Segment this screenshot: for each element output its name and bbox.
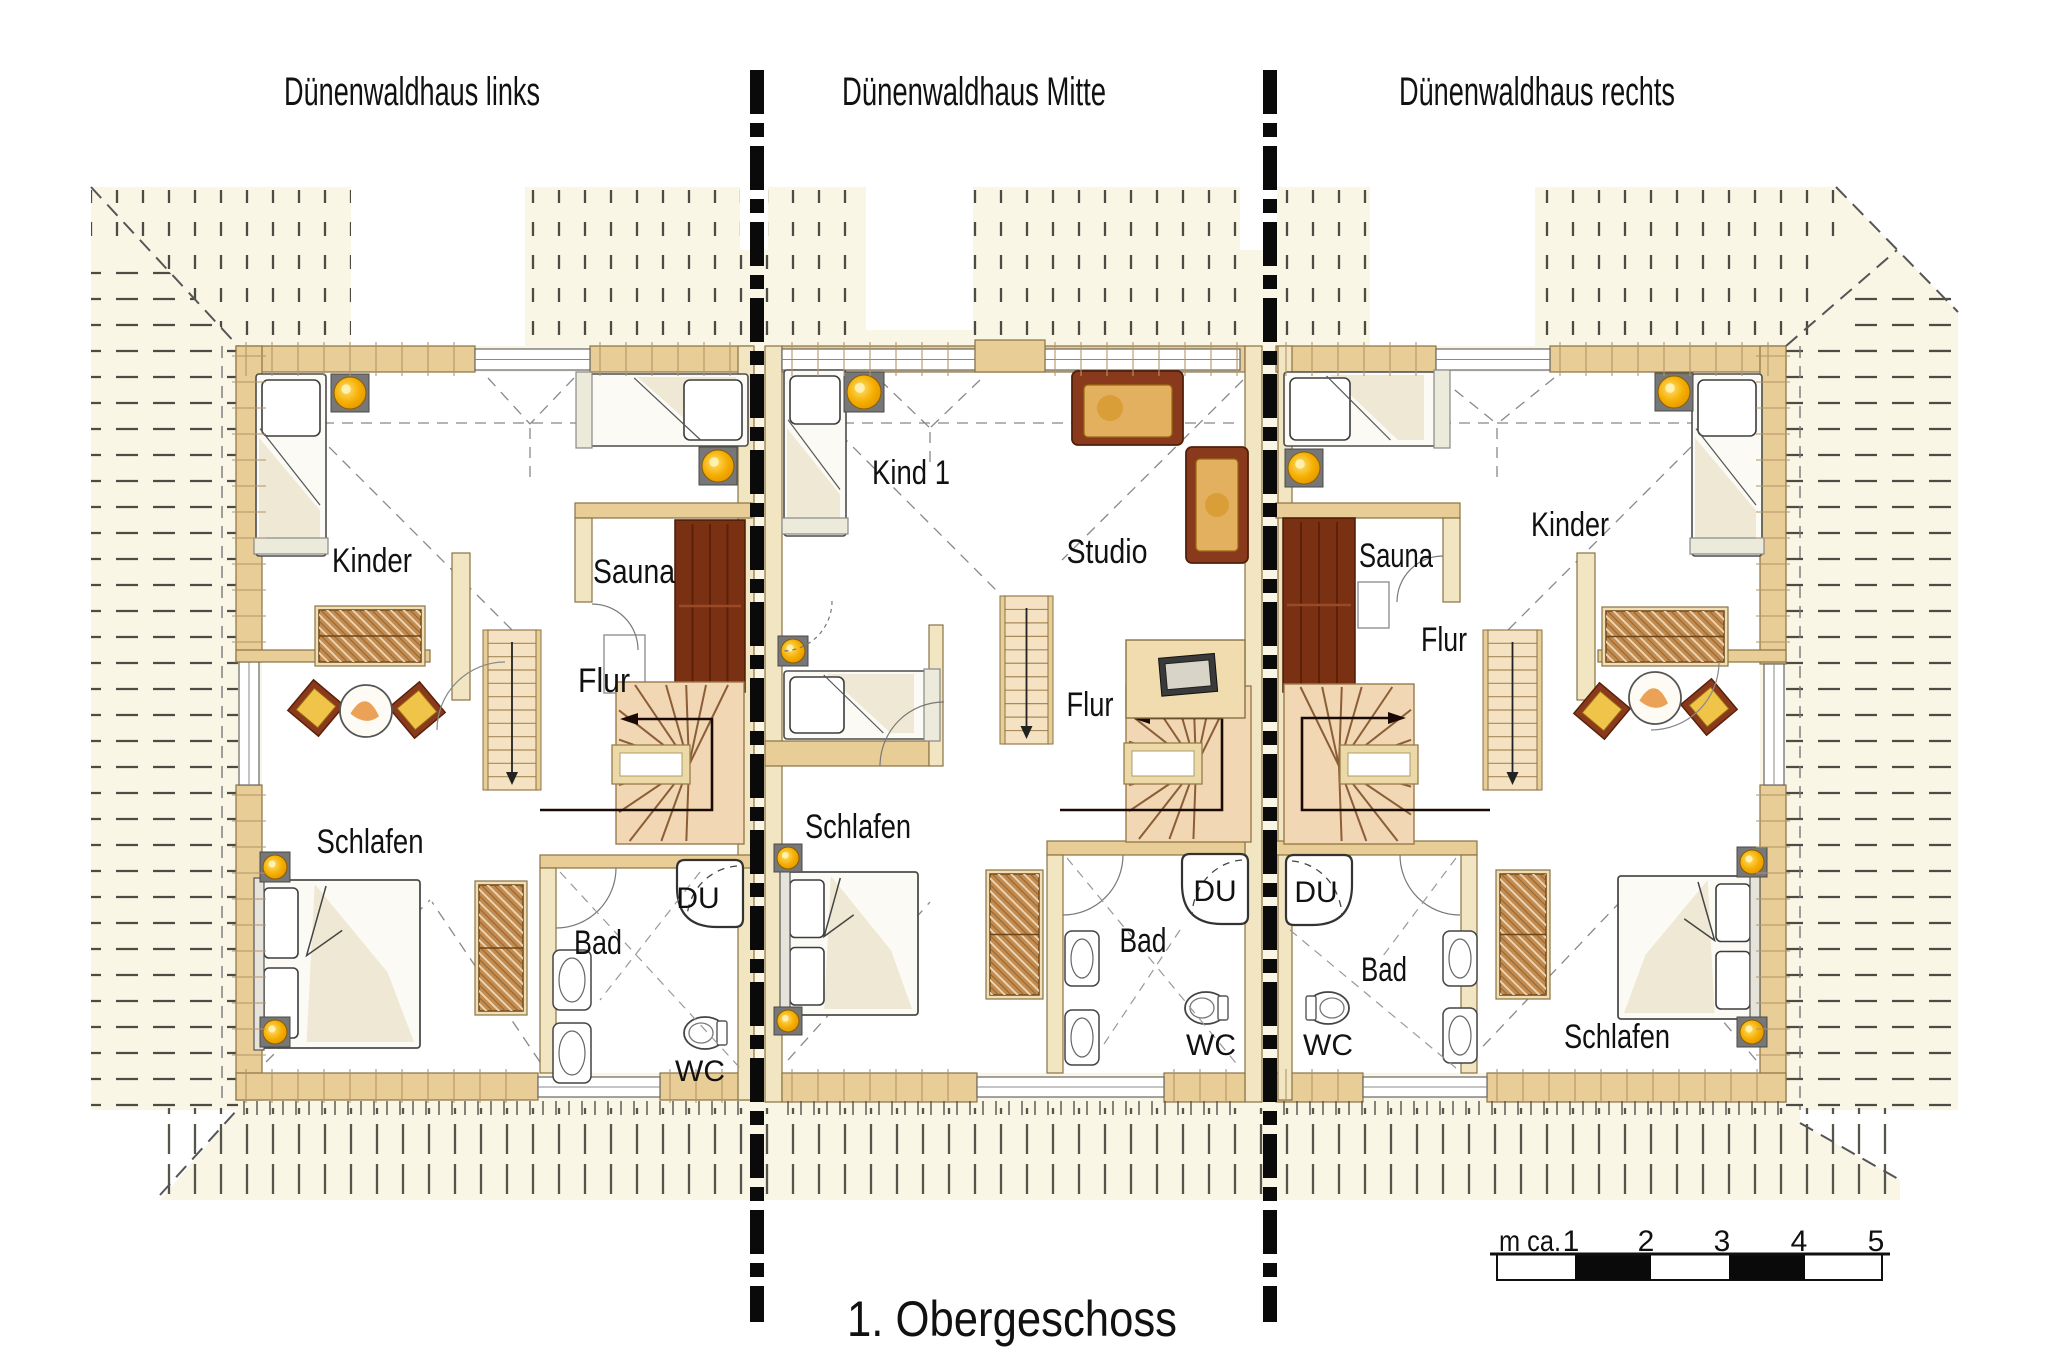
svg-text:m ca.: m ca. (1499, 1225, 1561, 1258)
svg-text:DU: DU (1294, 876, 1337, 909)
svg-text:Kinder: Kinder (332, 542, 412, 580)
svg-text:Dünenwaldhaus Mitte: Dünenwaldhaus Mitte (842, 70, 1106, 114)
svg-text:DU: DU (676, 882, 719, 915)
svg-text:Dünenwaldhaus links: Dünenwaldhaus links (284, 70, 540, 114)
svg-text:3: 3 (1714, 1225, 1731, 1258)
svg-text:1. Obergeschoss: 1. Obergeschoss (847, 1291, 1177, 1347)
svg-text:Sauna: Sauna (593, 553, 675, 591)
svg-text:Sauna: Sauna (1359, 537, 1433, 575)
svg-text:Flur: Flur (1067, 686, 1114, 724)
svg-text:5: 5 (1868, 1225, 1885, 1258)
svg-text:1: 1 (1563, 1225, 1580, 1258)
svg-text:4: 4 (1791, 1225, 1808, 1258)
svg-text:Bad: Bad (574, 924, 622, 962)
svg-text:Flur: Flur (578, 662, 630, 700)
svg-text:WC: WC (1303, 1029, 1353, 1062)
svg-text:Kinder: Kinder (1531, 506, 1609, 544)
svg-text:Schlafen: Schlafen (317, 823, 424, 861)
svg-text:Dünenwaldhaus rechts: Dünenwaldhaus rechts (1399, 70, 1675, 114)
svg-text:Studio: Studio (1067, 533, 1148, 571)
svg-text:Kind 1: Kind 1 (872, 454, 950, 492)
svg-text:Bad: Bad (1361, 951, 1407, 989)
svg-text:Bad: Bad (1120, 922, 1167, 960)
svg-text:Schlafen: Schlafen (1564, 1018, 1670, 1056)
svg-text:DU: DU (1193, 875, 1236, 908)
svg-text:Flur: Flur (1421, 621, 1467, 659)
svg-text:WC: WC (1186, 1029, 1236, 1062)
svg-text:WC: WC (675, 1055, 725, 1088)
svg-text:2: 2 (1638, 1225, 1655, 1258)
svg-text:Schlafen: Schlafen (805, 808, 911, 846)
